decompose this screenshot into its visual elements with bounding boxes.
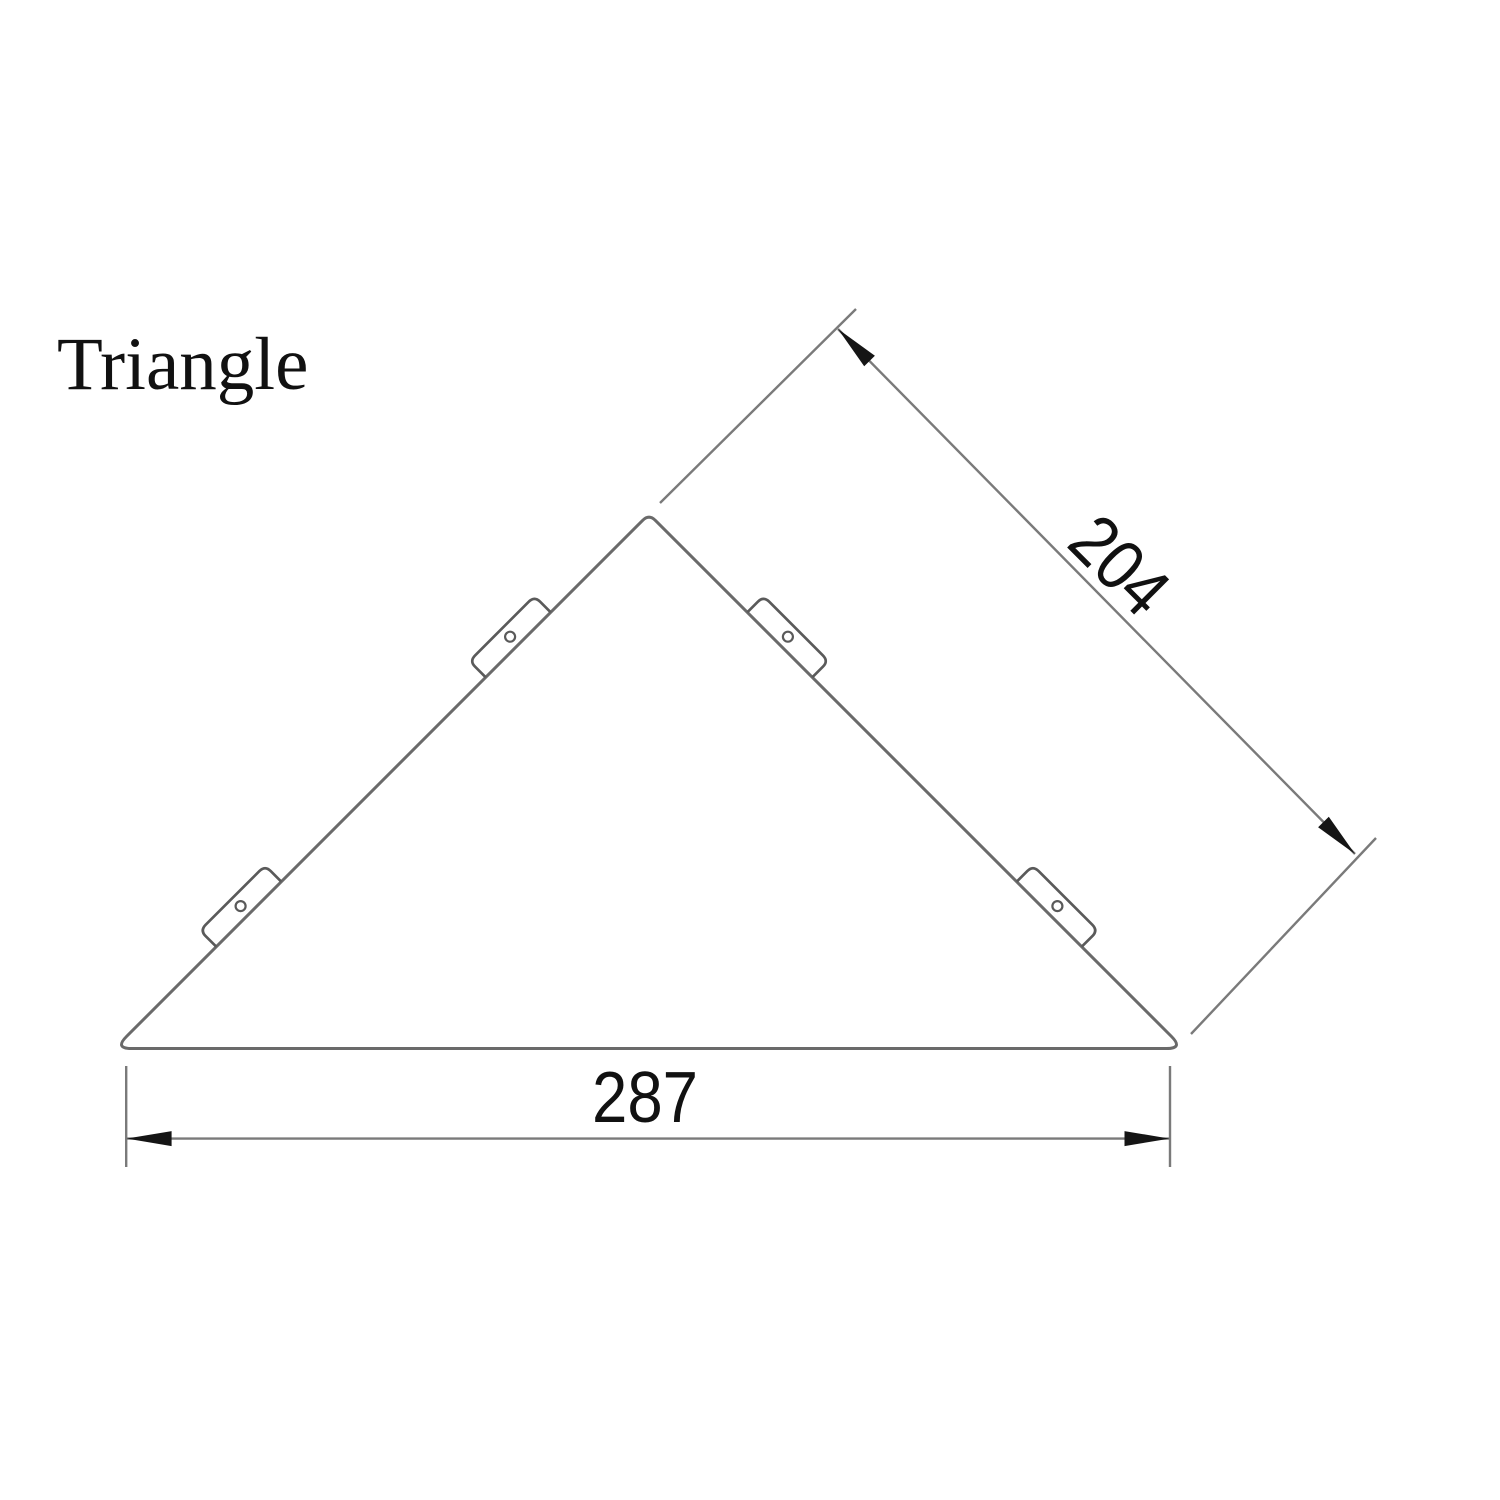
- svg-text:287: 287: [592, 1058, 698, 1138]
- svg-text:Triangle: Triangle: [57, 323, 308, 406]
